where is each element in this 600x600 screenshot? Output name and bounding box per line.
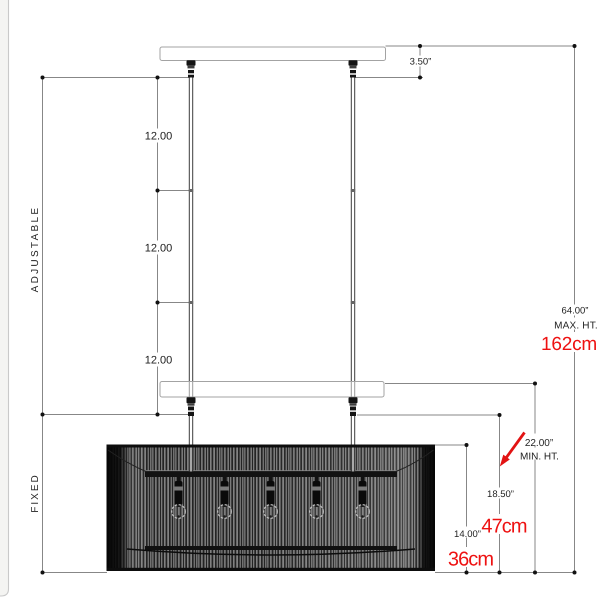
svg-text:18.50”: 18.50” [487,489,514,500]
svg-text:FIXED: FIXED [30,473,41,512]
svg-text:12.00: 12.00 [145,243,173,255]
svg-text:64.00”: 64.00” [562,306,589,317]
svg-text:MIN. HT.: MIN. HT. [520,452,559,463]
svg-text:36cm: 36cm [448,549,494,571]
svg-text:162cm: 162cm [541,334,597,355]
svg-text:22.00”: 22.00” [525,438,553,449]
svg-text:12.00: 12.00 [145,355,173,367]
svg-text:MAX. HT.: MAX. HT. [554,321,598,332]
svg-text:14.00”: 14.00” [454,529,481,540]
svg-text:ADJUSTABLE: ADJUSTABLE [30,206,41,293]
svg-text:3.50”: 3.50” [410,57,432,68]
svg-text:12.00: 12.00 [145,131,173,143]
svg-text:47cm: 47cm [481,516,527,538]
